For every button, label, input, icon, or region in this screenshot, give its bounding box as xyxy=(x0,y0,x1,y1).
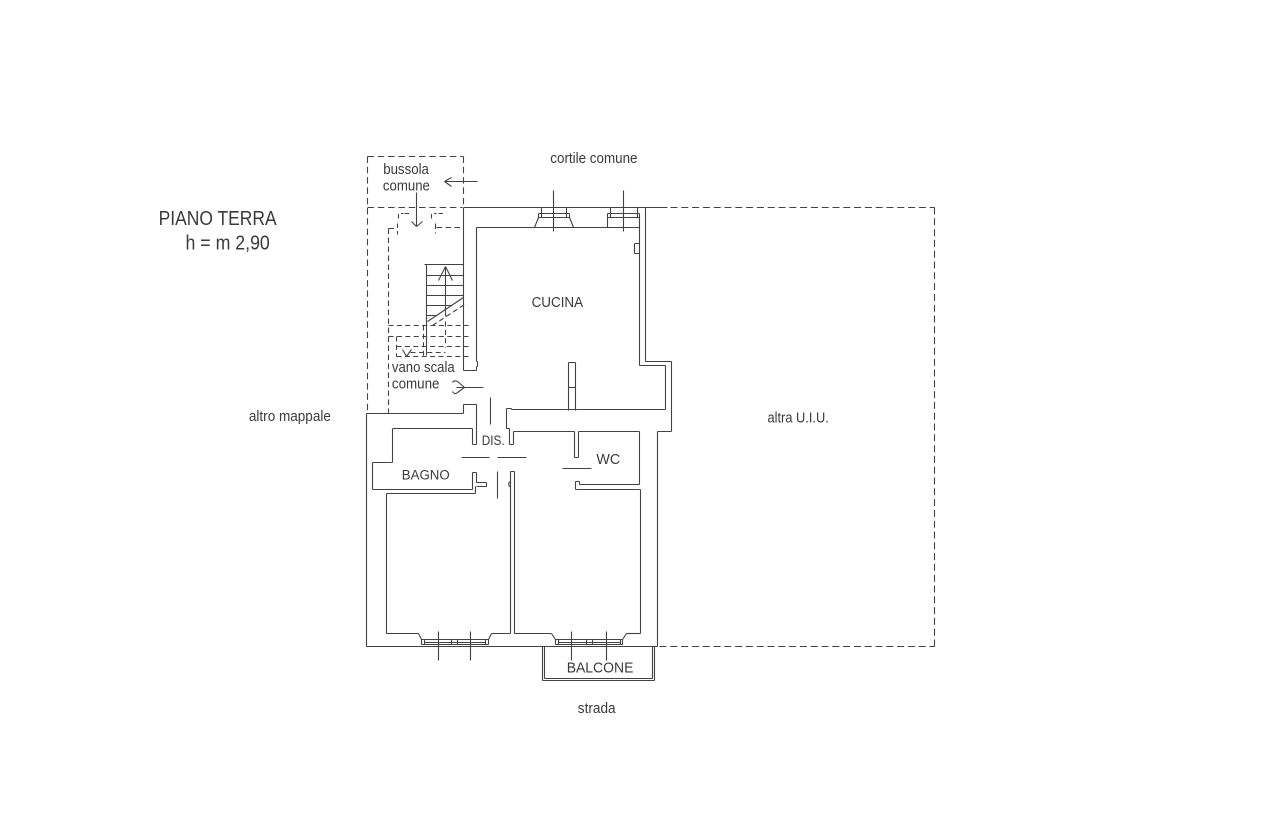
svg-text:altra U.I.U.: altra U.I.U. xyxy=(768,410,829,427)
svg-text:WC: WC xyxy=(596,451,620,468)
svg-text:BALCONE: BALCONE xyxy=(567,661,634,677)
svg-text:CUCINA: CUCINA xyxy=(532,295,584,311)
svg-text:h = m 2,90: h = m 2,90 xyxy=(186,232,270,254)
svg-text:vano scala: vano scala xyxy=(392,359,455,376)
svg-text:PIANO TERRA: PIANO TERRA xyxy=(159,208,278,230)
svg-text:comune: comune xyxy=(383,178,430,195)
svg-text:strada: strada xyxy=(578,700,616,717)
svg-text:cortile comune: cortile comune xyxy=(550,150,637,167)
svg-text:DIS.: DIS. xyxy=(482,433,505,448)
svg-text:comune: comune xyxy=(392,376,440,393)
svg-text:bussola: bussola xyxy=(383,161,429,178)
svg-text:BAGNO: BAGNO xyxy=(402,468,450,483)
svg-text:altro mappale: altro mappale xyxy=(249,408,331,425)
